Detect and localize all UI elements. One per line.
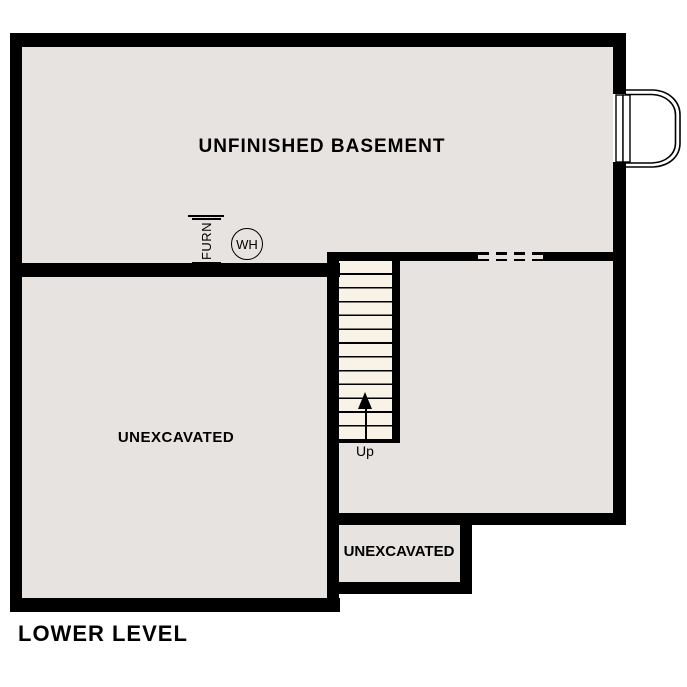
furnace-bracket-outer-right: [188, 215, 224, 217]
furnace-label: FURN: [199, 221, 214, 261]
room-label-unfinished-basement: UNFINISHED BASEMENT: [120, 136, 524, 158]
floor-plan: FURN WH UNFINISHED BASEMENT UNEXCAVATED …: [0, 0, 687, 687]
wall-stairwell-top-left-segment: [327, 252, 478, 261]
room-label-unexcavated-left: UNEXCAVATED: [76, 429, 276, 446]
wall-right-lower: [613, 162, 626, 525]
wall-top: [10, 33, 626, 47]
furnace-bracket-outer-left: [188, 265, 224, 267]
water-heater-label: WH: [236, 237, 258, 252]
dashed-opening-bottom: [478, 259, 543, 262]
up-arrow-stem: [365, 406, 368, 442]
wall-left: [10, 33, 22, 612]
stairs-up-label: Up: [347, 443, 383, 459]
room-label-unexcavated-small: UNEXCAVATED: [334, 543, 464, 560]
page-title: LOWER LEVEL: [18, 621, 188, 647]
wall-stairwell-right: [392, 252, 400, 443]
furnace-bracket-inner-right: [192, 218, 221, 220]
wall-rightroom-bottom: [327, 513, 626, 525]
up-arrow-icon: [358, 392, 372, 409]
wall-stairwell-top-right-segment: [543, 252, 613, 261]
wall-smallroom-bottom: [327, 582, 472, 594]
dashed-opening-top: [478, 252, 543, 255]
furnace-bracket-inner-left: [192, 262, 221, 264]
furnace-symbol: FURN: [187, 219, 225, 263]
wall-leftroom-bottom: [10, 598, 340, 612]
water-heater-symbol: WH: [231, 228, 263, 260]
wall-divider-basement-left: [10, 263, 340, 277]
exterior-door-icon: [605, 75, 687, 185]
